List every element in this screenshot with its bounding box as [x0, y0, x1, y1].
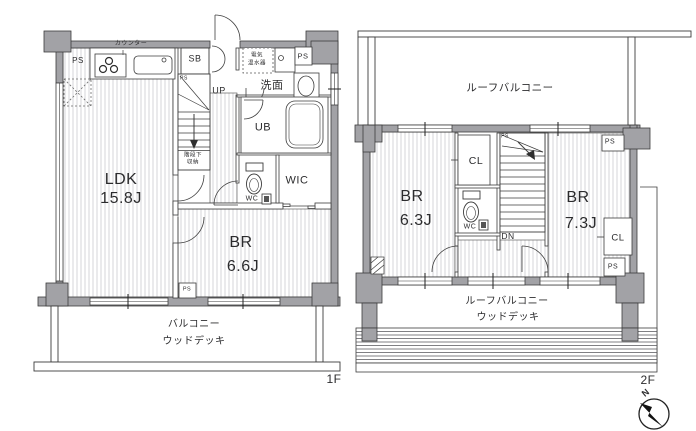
label-wic: WIC [286, 176, 309, 187]
label-wooddeck-1f: ウッドデッキ [163, 337, 226, 347]
sink-icon [134, 56, 172, 74]
label-ps-stairs-1f: PS [180, 77, 188, 82]
label-ps-topleft: PS [72, 57, 84, 65]
pillar [46, 283, 68, 306]
balcony-post [368, 37, 375, 125]
label-br-1f-size: 6.6J [227, 259, 259, 275]
label-roofbalcony-top: ルーフバルコニー [466, 83, 553, 94]
hall-door [178, 175, 204, 201]
label-ps-stairs-2f: PS [501, 135, 509, 140]
label-wooddeck-2f: ウッドデッキ [477, 313, 540, 323]
pillar-cap [362, 328, 377, 341]
shoebox-door [212, 46, 225, 59]
toilet-icon-1f [246, 163, 263, 194]
hall-floor [210, 93, 237, 203]
deck-stripes [356, 328, 657, 372]
label-ps-bottomright: PS [608, 264, 618, 271]
pillar [356, 273, 382, 303]
label-waterheater-2: 温水器 [248, 61, 266, 67]
stairs-2f [500, 133, 545, 232]
label-up: UP [212, 87, 226, 96]
label-floor-1f: 1F [326, 373, 341, 385]
balcony-post [628, 37, 635, 125]
duct-shaft-icon [371, 257, 384, 274]
label-stairstorage-2: 収納 [187, 160, 199, 166]
label-cl-right: CL [611, 233, 624, 243]
label-ldk-size: 15.8J [100, 191, 142, 207]
bedroom1-floor [370, 132, 455, 278]
balcony-post [316, 306, 323, 362]
pillar [311, 41, 338, 64]
label-br1-size: 6.3J [400, 213, 432, 229]
label-br2-size: 7.3J [565, 216, 597, 232]
washer-pan-icon [275, 48, 295, 72]
pillar-cap [622, 328, 638, 341]
wc-outlet-box [262, 194, 271, 204]
label-wc-2f: WC [464, 224, 477, 231]
label-stairstorage-1: 階段下 [184, 153, 202, 159]
label-cl-left: CL [469, 156, 483, 167]
washbasin-icon [294, 73, 319, 98]
compass-icon [639, 399, 669, 429]
label-washroom: 洗面 [261, 81, 284, 92]
label-br2: BR [566, 190, 589, 206]
pillar [312, 283, 338, 306]
label-waterheater-1: 電気 [251, 53, 263, 59]
label-ps-br: PS [183, 287, 191, 293]
wc-outlet-box [479, 220, 488, 230]
label-dn: DN [501, 232, 514, 241]
label-balcony: バルコニー [168, 320, 220, 330]
kitchen-counter-icon [90, 48, 175, 79]
pillar [616, 273, 644, 303]
pillar [363, 125, 375, 152]
label-wc-1f: WC [246, 196, 259, 203]
label-ldk: LDK [105, 172, 138, 188]
label-ps-topright-2f: PS [605, 139, 615, 146]
hall-floor-2f [455, 240, 548, 277]
railing [358, 31, 691, 37]
bedroom-floor-1f [178, 209, 331, 297]
label-counter: カウンター [115, 41, 148, 47]
label-unitbath: UB [255, 123, 271, 134]
label-br1: BR [400, 189, 423, 205]
balcony-post [51, 306, 58, 362]
label-br-1f: BR [229, 235, 252, 251]
deck-edge [356, 363, 657, 372]
label-ps-topright: PS [297, 52, 308, 60]
label-shoebox: SB [188, 55, 201, 64]
pillar [623, 128, 650, 149]
balcony-edge [34, 362, 340, 371]
label-floor-2f: 2F [640, 374, 655, 386]
label-roofbalcony-bottom: ルーフバルコニー [465, 297, 548, 307]
floor1-plan [34, 15, 341, 371]
floorplan-image: PS カウンター SB 電気 温水器 PS PS UP 洗面 UB 階段下 収納… [0, 0, 696, 431]
pillar [44, 31, 71, 52]
toilet-icon-2f [463, 191, 480, 222]
